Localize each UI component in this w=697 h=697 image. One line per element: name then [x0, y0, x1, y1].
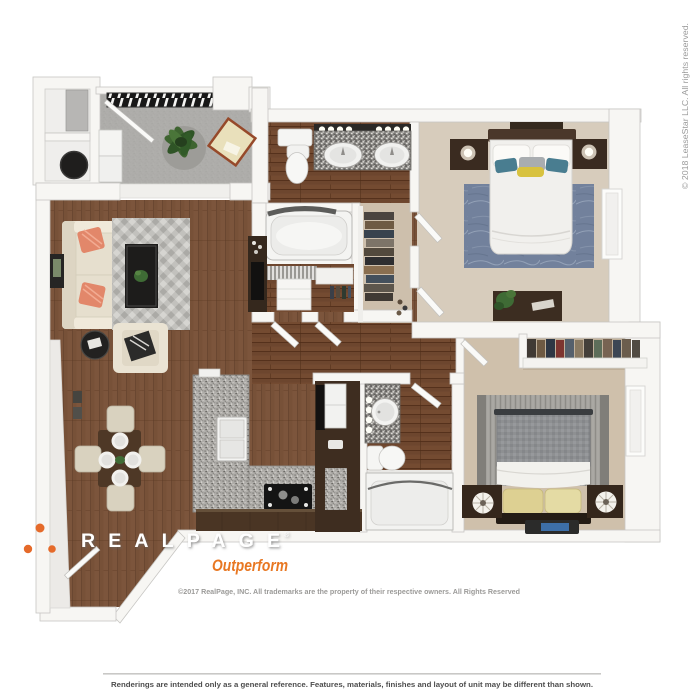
svg-text:Outperform: Outperform: [212, 556, 288, 575]
svg-text:®: ®: [284, 531, 290, 539]
svg-text:© 2018 LeaseStar LLC. All righ: © 2018 LeaseStar LLC. All rights reserve…: [681, 23, 690, 189]
svg-text:©2017 RealPage, INC. All trad: ©2017 RealPage, INC. All trademarks are …: [178, 587, 520, 596]
svg-text:Renderings are intended only a: Renderings are intended only as a genera…: [111, 680, 593, 689]
